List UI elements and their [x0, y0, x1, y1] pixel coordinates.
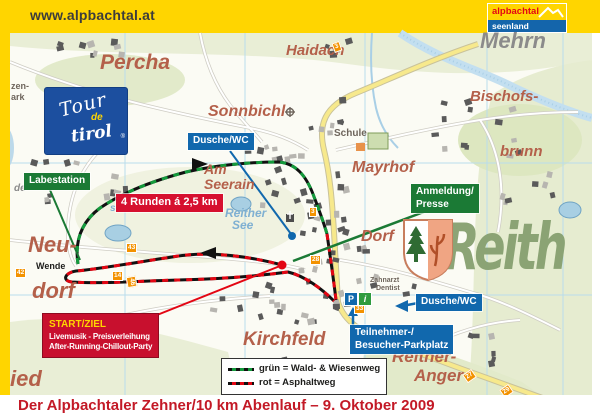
- route-legend: grün = Wald- & Wiesenweg rot = Asphaltwe…: [221, 358, 387, 395]
- legend-row-red: rot = Asphaltweg: [228, 376, 380, 390]
- parking-label-line2: Besucher-Parkplatz: [355, 340, 448, 353]
- event-caption: Der Alpbachtaler Zehner/10 km Abenlauf –…: [18, 397, 435, 414]
- shower-location-dot: [288, 232, 296, 240]
- registration-label-line1: Anmeldung/: [416, 186, 474, 199]
- parking-icon: P: [345, 293, 357, 305]
- laps-label: 4 Runden á 2,5 km: [121, 196, 218, 208]
- tour-logo-registered-mark: ®: [121, 134, 125, 140]
- shower-wc-label-north: Dusche/WC: [193, 135, 249, 146]
- start-finish-line1: Livemusik - Preisverleihung: [49, 332, 152, 343]
- shower-wc-box-north: Dusche/WC: [188, 133, 254, 150]
- parking-label-line1: Teilnehmer-/: [355, 327, 448, 340]
- tour-logo-line3: tirol: [70, 121, 113, 147]
- start-finish-box: START/ZIEL Livemusik - Preisverleihung A…: [42, 313, 159, 358]
- legend-row-green: grün = Wald- & Wiesenweg: [228, 362, 380, 376]
- event-map-page: Reith Tour de tirol ® PerchaHaidachMehrn…: [0, 0, 600, 420]
- legend-red-label: rot = Asphaltweg: [259, 376, 335, 390]
- red-route-sample: [228, 382, 254, 385]
- labestation-label: Labestation: [29, 175, 85, 186]
- shower-wc-box-south: Dusche/WC: [416, 294, 482, 311]
- laps-box: 4 Runden á 2,5 km: [116, 194, 223, 212]
- start-finish-line2: After-Running-Chillout-Party: [49, 342, 152, 353]
- start-finish-dot: [278, 261, 287, 270]
- labestation-box: Labestation: [24, 173, 90, 190]
- registration-press-box: Anmeldung/ Presse: [411, 184, 479, 213]
- left-yellow-strip: [0, 33, 10, 395]
- green-route-sample: [228, 368, 254, 371]
- tour-de-tirol-logo: Tour de tirol ®: [44, 87, 128, 155]
- legend-green-label: grün = Wald- & Wiesenweg: [259, 362, 380, 376]
- participant-parking-box: Teilnehmer-/ Besucher-Parkplatz: [350, 325, 453, 354]
- shower-wc-label-south: Dusche/WC: [421, 296, 477, 307]
- start-finish-title: START/ZIEL: [49, 318, 152, 332]
- tour-logo-line2: de: [91, 112, 103, 123]
- registration-label-line2: Presse: [416, 199, 474, 212]
- right-margin: [592, 33, 600, 395]
- info-icon: i: [359, 293, 371, 305]
